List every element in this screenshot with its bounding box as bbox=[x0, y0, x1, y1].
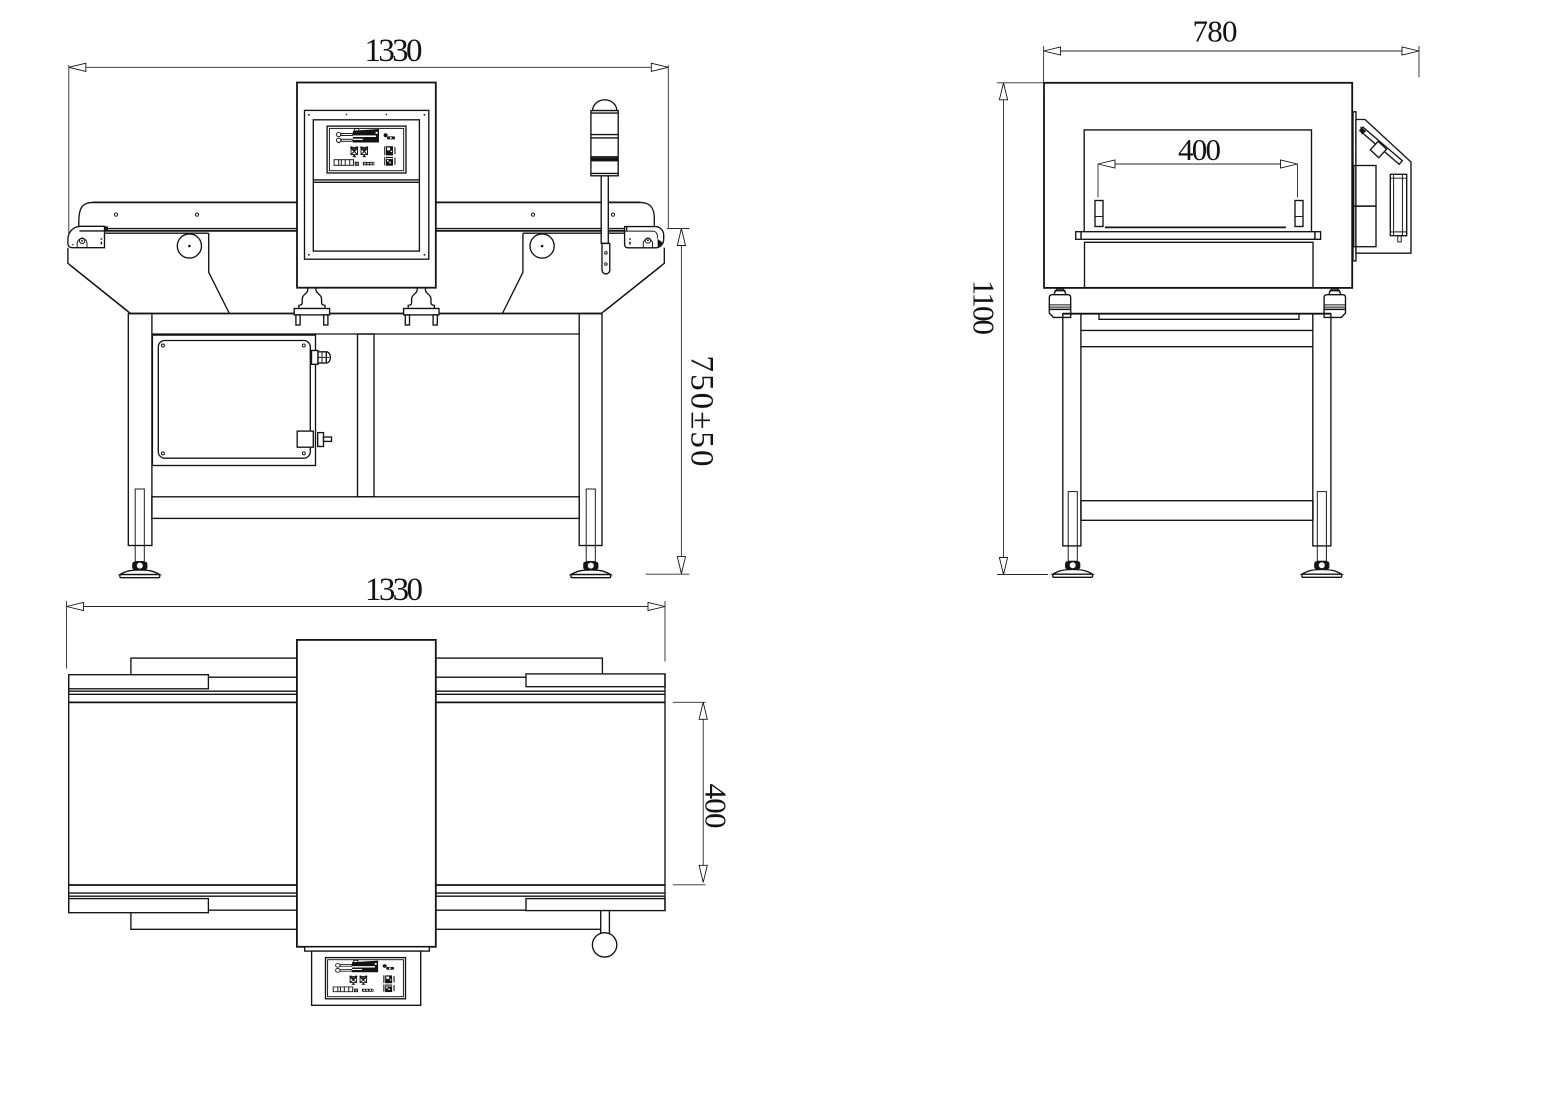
svg-text:780: 780 bbox=[1193, 14, 1238, 49]
svg-text:1330: 1330 bbox=[365, 572, 423, 608]
svg-text:400: 400 bbox=[1178, 132, 1221, 167]
svg-text:1100: 1100 bbox=[967, 280, 1002, 335]
svg-text:750±50: 750±50 bbox=[684, 356, 720, 467]
svg-text:1330: 1330 bbox=[365, 33, 423, 69]
svg-text:400: 400 bbox=[699, 784, 734, 829]
